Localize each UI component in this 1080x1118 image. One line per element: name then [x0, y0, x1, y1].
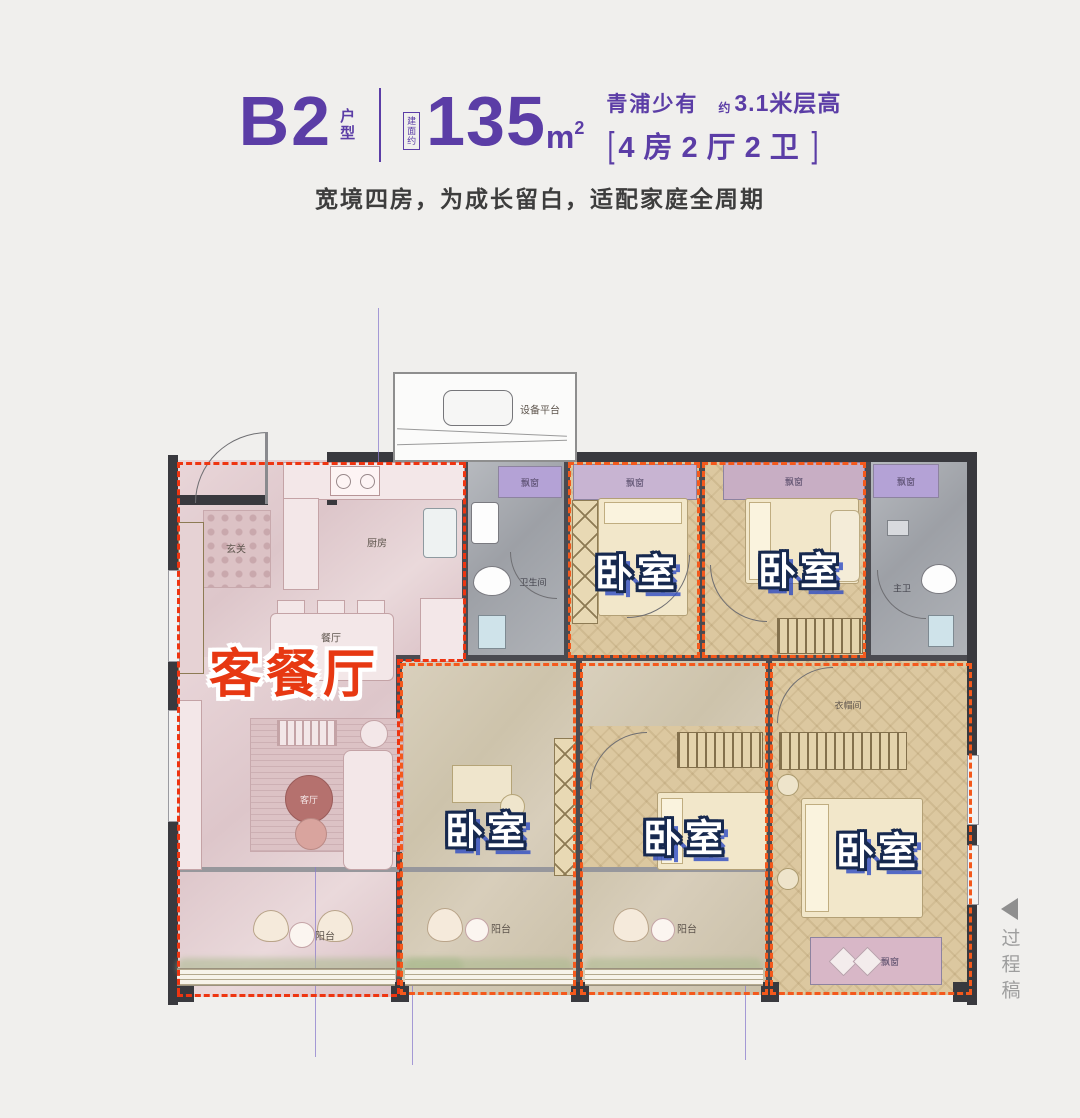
outer-wall — [967, 455, 977, 1005]
window — [405, 968, 573, 986]
area-note: 建面约 — [403, 112, 420, 150]
bedroom-label: 卧室 — [445, 801, 529, 856]
balcony-table — [289, 922, 315, 948]
balcony-table — [651, 918, 675, 942]
bay-window-label: 飘窗 — [521, 476, 539, 489]
window — [168, 570, 180, 662]
bay-window-label: 飘窗 — [785, 475, 803, 488]
header: B2 户型 建面约 135 m2 青浦少有 约 3.1米层高 [ 4房2厅2卫 … — [0, 82, 1080, 178]
bracket-open: [ — [608, 128, 615, 162]
window — [168, 710, 180, 822]
shower-icon — [928, 615, 954, 647]
floorplan-page: B2 户型 建面约 135 m2 青浦少有 约 3.1米层高 [ 4房2厅2卫 … — [0, 0, 1080, 1118]
balcony-label: 阳台 — [677, 921, 697, 936]
wall — [699, 458, 705, 658]
layout-spec: 4房2厅2卫 — [618, 124, 807, 166]
area-unit: m2 — [546, 118, 584, 156]
bay-window-label: 飘窗 — [897, 475, 915, 488]
bay-window-bedroom-3: 飘窗 — [723, 462, 865, 500]
area-value: 135 — [426, 82, 546, 160]
fridge — [420, 598, 464, 662]
subtitle: 宽境四房，为成长留白，适配家庭全周期 — [0, 180, 1080, 214]
process-draft-mark: 过程稿 — [992, 898, 1026, 1006]
outer-wall — [953, 982, 977, 1002]
pillow-icon — [853, 947, 883, 977]
storage-cabinet — [178, 522, 204, 674]
balcony-chair — [613, 908, 649, 942]
kitchen-counter — [283, 498, 319, 590]
left-triangle-icon — [1001, 898, 1018, 920]
balcony-chair — [253, 910, 289, 942]
ac-unit-icon — [443, 390, 513, 426]
entry-label: 玄关 — [226, 541, 246, 556]
area-superscript: 2 — [574, 118, 584, 138]
equipment-platform-label: 设备平台 — [520, 402, 560, 417]
speaker-icon — [777, 868, 799, 890]
kitchen-sink-icon — [423, 508, 457, 558]
spec-line-1: 青浦少有 约 3.1米层高 — [606, 84, 841, 118]
height-approx: 约 — [718, 99, 730, 116]
bracket-close: ] — [811, 128, 818, 162]
burner-icon — [360, 474, 375, 489]
toilet-icon — [921, 564, 957, 594]
burner-icon — [336, 474, 351, 489]
plan-code-block: B2 户型 — [239, 82, 357, 160]
fan-icon — [360, 720, 388, 748]
kitchen-label: 厨房 — [367, 535, 387, 550]
window — [967, 845, 979, 905]
side-table — [295, 818, 327, 850]
bay-window-bathroom: 飘窗 — [498, 466, 562, 498]
wall — [399, 655, 975, 661]
closet-wardrobe — [779, 732, 907, 770]
bedroom-label: 卧室 — [643, 808, 727, 863]
shower-head-icon — [887, 520, 909, 536]
bed-pillow — [604, 502, 682, 524]
wall — [564, 458, 570, 658]
wall — [865, 458, 871, 658]
window — [967, 755, 979, 825]
wall — [576, 655, 582, 1001]
living-dining-label: 客餐厅 — [209, 632, 380, 707]
highlight-text: 青浦少有 — [606, 88, 698, 118]
equipment-platform: 设备平台 — [393, 372, 577, 462]
bedroom-label: 卧室 — [836, 821, 920, 876]
toilet-icon — [473, 566, 511, 596]
plan-code: B2 — [239, 82, 332, 160]
balcony-label: 阳台 — [491, 921, 511, 936]
entry-door-arc — [195, 432, 268, 503]
process-draft-text: 过程稿 — [996, 928, 1023, 1006]
outer-wall — [761, 982, 779, 1002]
washbasin-icon — [471, 502, 499, 544]
bay-window-master-bedroom: 飘窗 — [810, 937, 942, 985]
living-label: 客厅 — [300, 793, 318, 806]
balcony-table — [465, 918, 489, 942]
height-text: 3.1米层高 — [734, 84, 841, 118]
bed-pillow — [805, 804, 829, 912]
balcony-divider — [402, 867, 576, 872]
bay-window-label: 飘窗 — [626, 476, 644, 489]
sofa — [343, 750, 393, 870]
guide-line — [412, 985, 413, 1065]
bay-window-master-bath: 飘窗 — [873, 464, 939, 498]
spec-line-2: [ 4房2厅2卫 ] — [606, 124, 841, 166]
closet-label: 衣帽间 — [834, 699, 861, 712]
wardrobe — [677, 732, 763, 768]
wardrobe — [554, 738, 576, 876]
balcony-label: 阳台 — [315, 928, 335, 943]
guide-line — [745, 985, 746, 1060]
area-block: 建面约 135 m2 — [403, 82, 584, 160]
tv-bench — [277, 720, 337, 746]
entry-door-leaf — [265, 432, 268, 504]
bedroom-label: 卧室 — [595, 543, 679, 598]
spec-block: 青浦少有 约 3.1米层高 [ 4房2厅2卫 ] — [606, 84, 841, 166]
speaker-icon — [777, 774, 799, 796]
window — [177, 968, 395, 986]
bay-window-bedroom-2: 飘窗 — [573, 464, 697, 500]
area-unit-m: m — [546, 119, 574, 155]
stove-icon — [330, 466, 380, 496]
bedroom-label: 卧室 — [758, 541, 842, 596]
wardrobe — [777, 618, 863, 654]
tv-cabinet — [178, 700, 202, 870]
bay-window-label: 飘窗 — [881, 955, 899, 968]
floorplan: 设备平台 — [165, 370, 980, 1018]
guide-line — [378, 308, 379, 463]
window — [585, 968, 763, 986]
header-divider — [379, 88, 381, 162]
shower-icon — [478, 615, 506, 649]
balcony-chair — [427, 908, 463, 942]
coffee-table: 客厅 — [285, 775, 333, 823]
plan-code-tag: 户型 — [336, 108, 357, 142]
